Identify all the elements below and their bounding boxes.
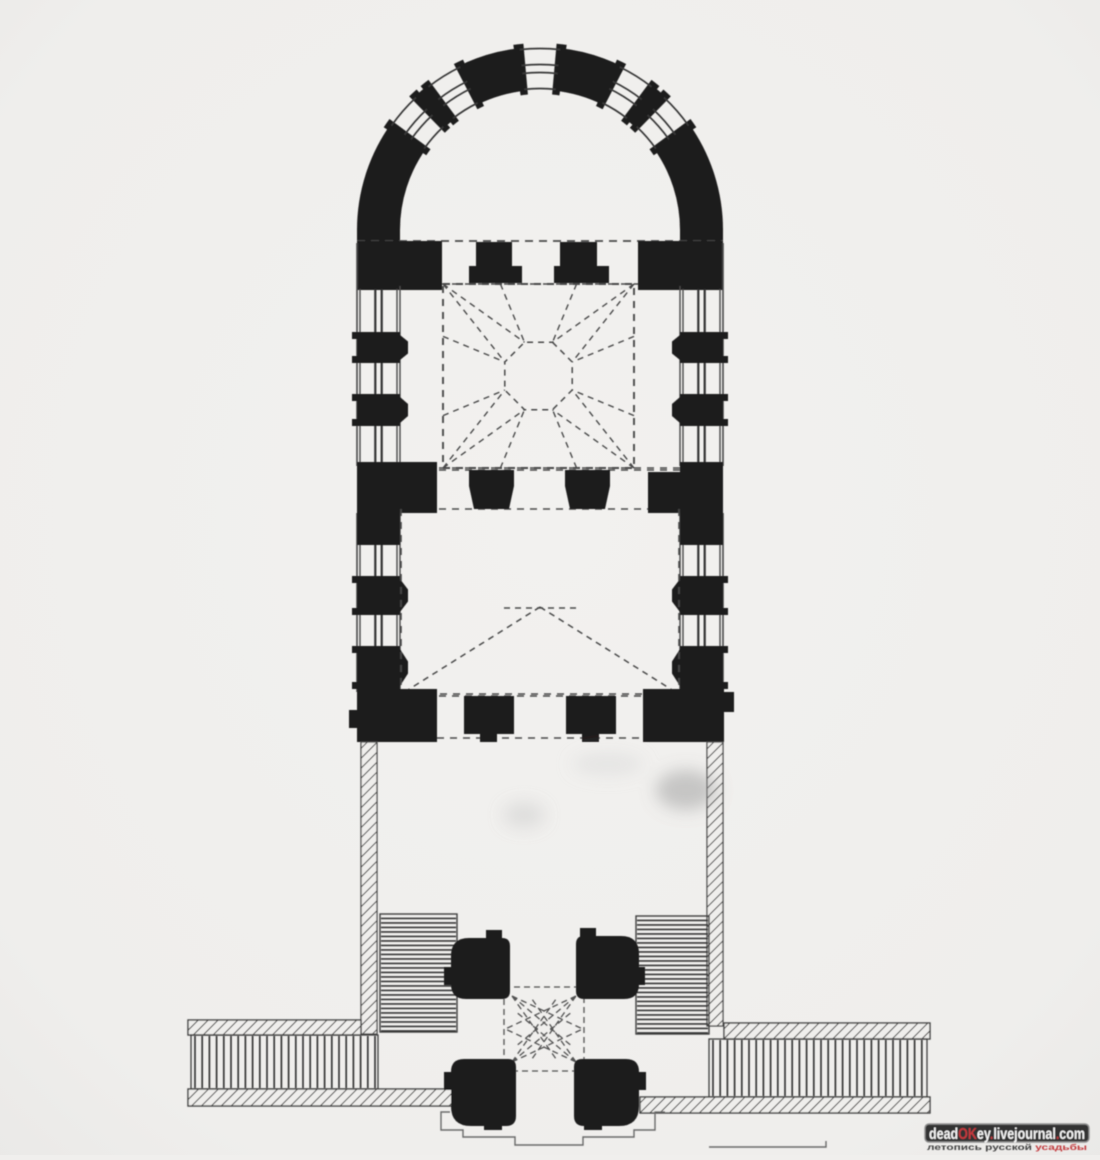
svg-text:deadOKey.livejournal.com: deadOKey.livejournal.com — [929, 1126, 1085, 1143]
svg-text:летопись русской усадьбы: летопись русской усадьбы — [927, 1143, 1087, 1152]
